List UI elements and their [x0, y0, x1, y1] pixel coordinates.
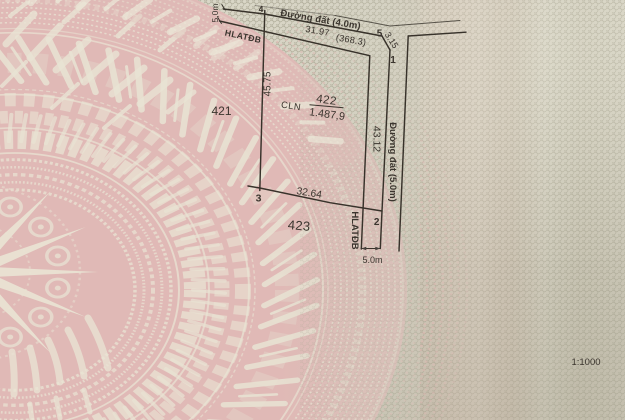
svg-text:5.0m: 5.0m: [362, 255, 382, 265]
svg-text:4: 4: [259, 4, 264, 14]
svg-text:5: 5: [377, 29, 383, 40]
svg-text:2: 2: [374, 217, 380, 228]
svg-text:Đường đất (5.0m): Đường đất (5.0m): [387, 122, 398, 202]
svg-text:1:1000: 1:1000: [571, 357, 600, 368]
svg-text:45.75: 45.75: [262, 71, 273, 96]
svg-text:3: 3: [256, 192, 262, 204]
svg-text:43.12: 43.12: [371, 126, 383, 152]
svg-text:1: 1: [390, 55, 396, 66]
svg-text:423: 423: [287, 217, 311, 234]
svg-text:5,0m: 5,0m: [210, 4, 220, 23]
svg-text:421: 421: [211, 104, 231, 118]
svg-text:HLATĐB: HLATĐB: [349, 211, 360, 249]
